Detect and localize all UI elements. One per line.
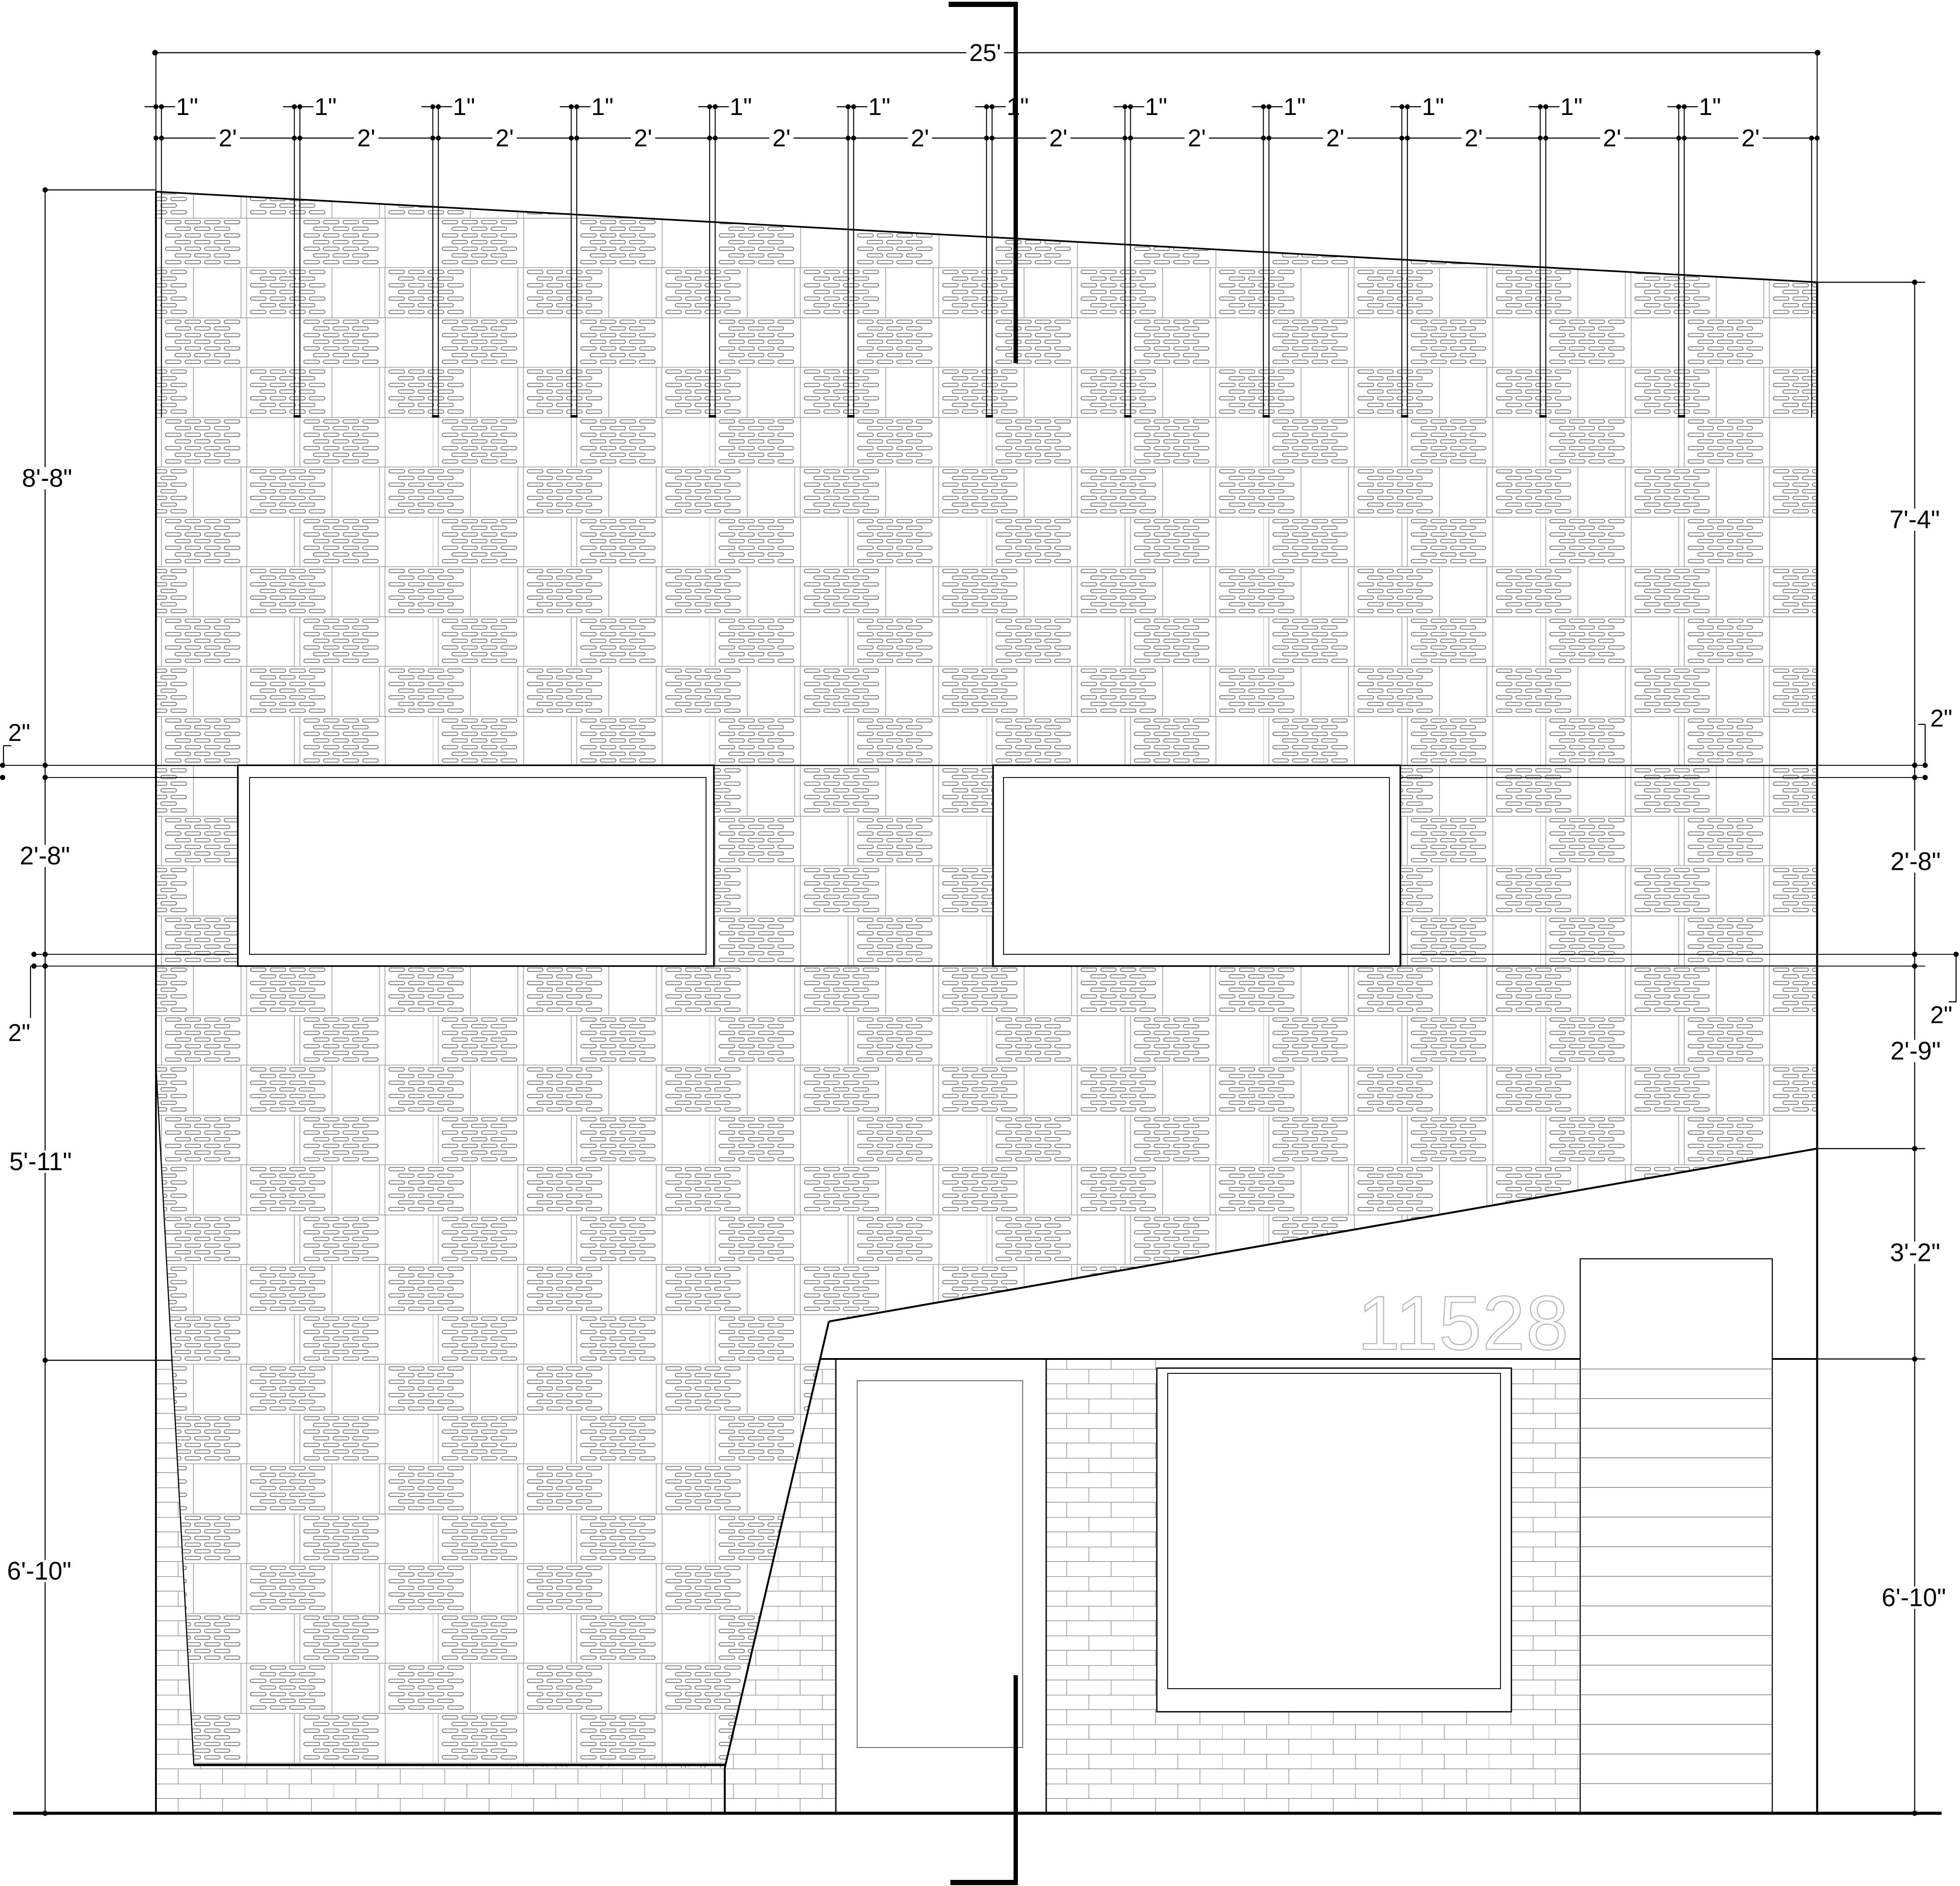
svg-text:1": 1"	[1145, 93, 1167, 120]
svg-text:2': 2'	[1188, 124, 1206, 152]
svg-text:11528: 11528	[1358, 1281, 1569, 1366]
svg-text:2': 2'	[1603, 124, 1621, 152]
svg-text:2": 2"	[1930, 704, 1952, 732]
svg-text:2'-8": 2'-8"	[20, 842, 70, 870]
svg-text:1": 1"	[730, 93, 752, 120]
svg-text:1": 1"	[1284, 93, 1306, 120]
svg-text:2': 2'	[1741, 124, 1760, 152]
svg-text:1": 1"	[591, 93, 614, 120]
svg-text:2': 2'	[1326, 124, 1345, 152]
svg-text:1": 1"	[868, 93, 890, 120]
svg-text:1": 1"	[1422, 93, 1444, 120]
svg-text:25': 25'	[970, 39, 1001, 66]
svg-text:6'-10": 6'-10"	[7, 1557, 71, 1585]
svg-text:2': 2'	[634, 124, 652, 152]
svg-text:2': 2'	[357, 124, 375, 152]
svg-text:5'-11": 5'-11"	[9, 1148, 71, 1176]
svg-text:2': 2'	[1464, 124, 1483, 152]
svg-text:2': 2'	[911, 124, 929, 152]
svg-text:2': 2'	[772, 124, 791, 152]
svg-text:8'-8": 8'-8"	[22, 464, 72, 493]
svg-text:1": 1"	[176, 93, 198, 120]
svg-text:1": 1"	[453, 93, 475, 120]
svg-text:2': 2'	[496, 124, 514, 152]
svg-text:7'-4": 7'-4"	[1889, 506, 1940, 534]
svg-text:2': 2'	[1049, 124, 1068, 152]
svg-text:1": 1"	[1699, 93, 1721, 120]
svg-text:2'-8": 2'-8"	[1890, 848, 1941, 876]
svg-text:2'-9": 2'-9"	[1890, 1037, 1941, 1065]
svg-text:1": 1"	[1560, 93, 1582, 120]
svg-text:2': 2'	[219, 124, 237, 152]
svg-text:1": 1"	[314, 93, 337, 120]
svg-text:6'-10": 6'-10"	[1882, 1584, 1946, 1612]
svg-text:2": 2"	[1930, 1001, 1952, 1028]
svg-text:3'-2": 3'-2"	[1890, 1239, 1940, 1267]
svg-text:2": 2"	[8, 1019, 30, 1046]
svg-text:2": 2"	[8, 719, 30, 746]
